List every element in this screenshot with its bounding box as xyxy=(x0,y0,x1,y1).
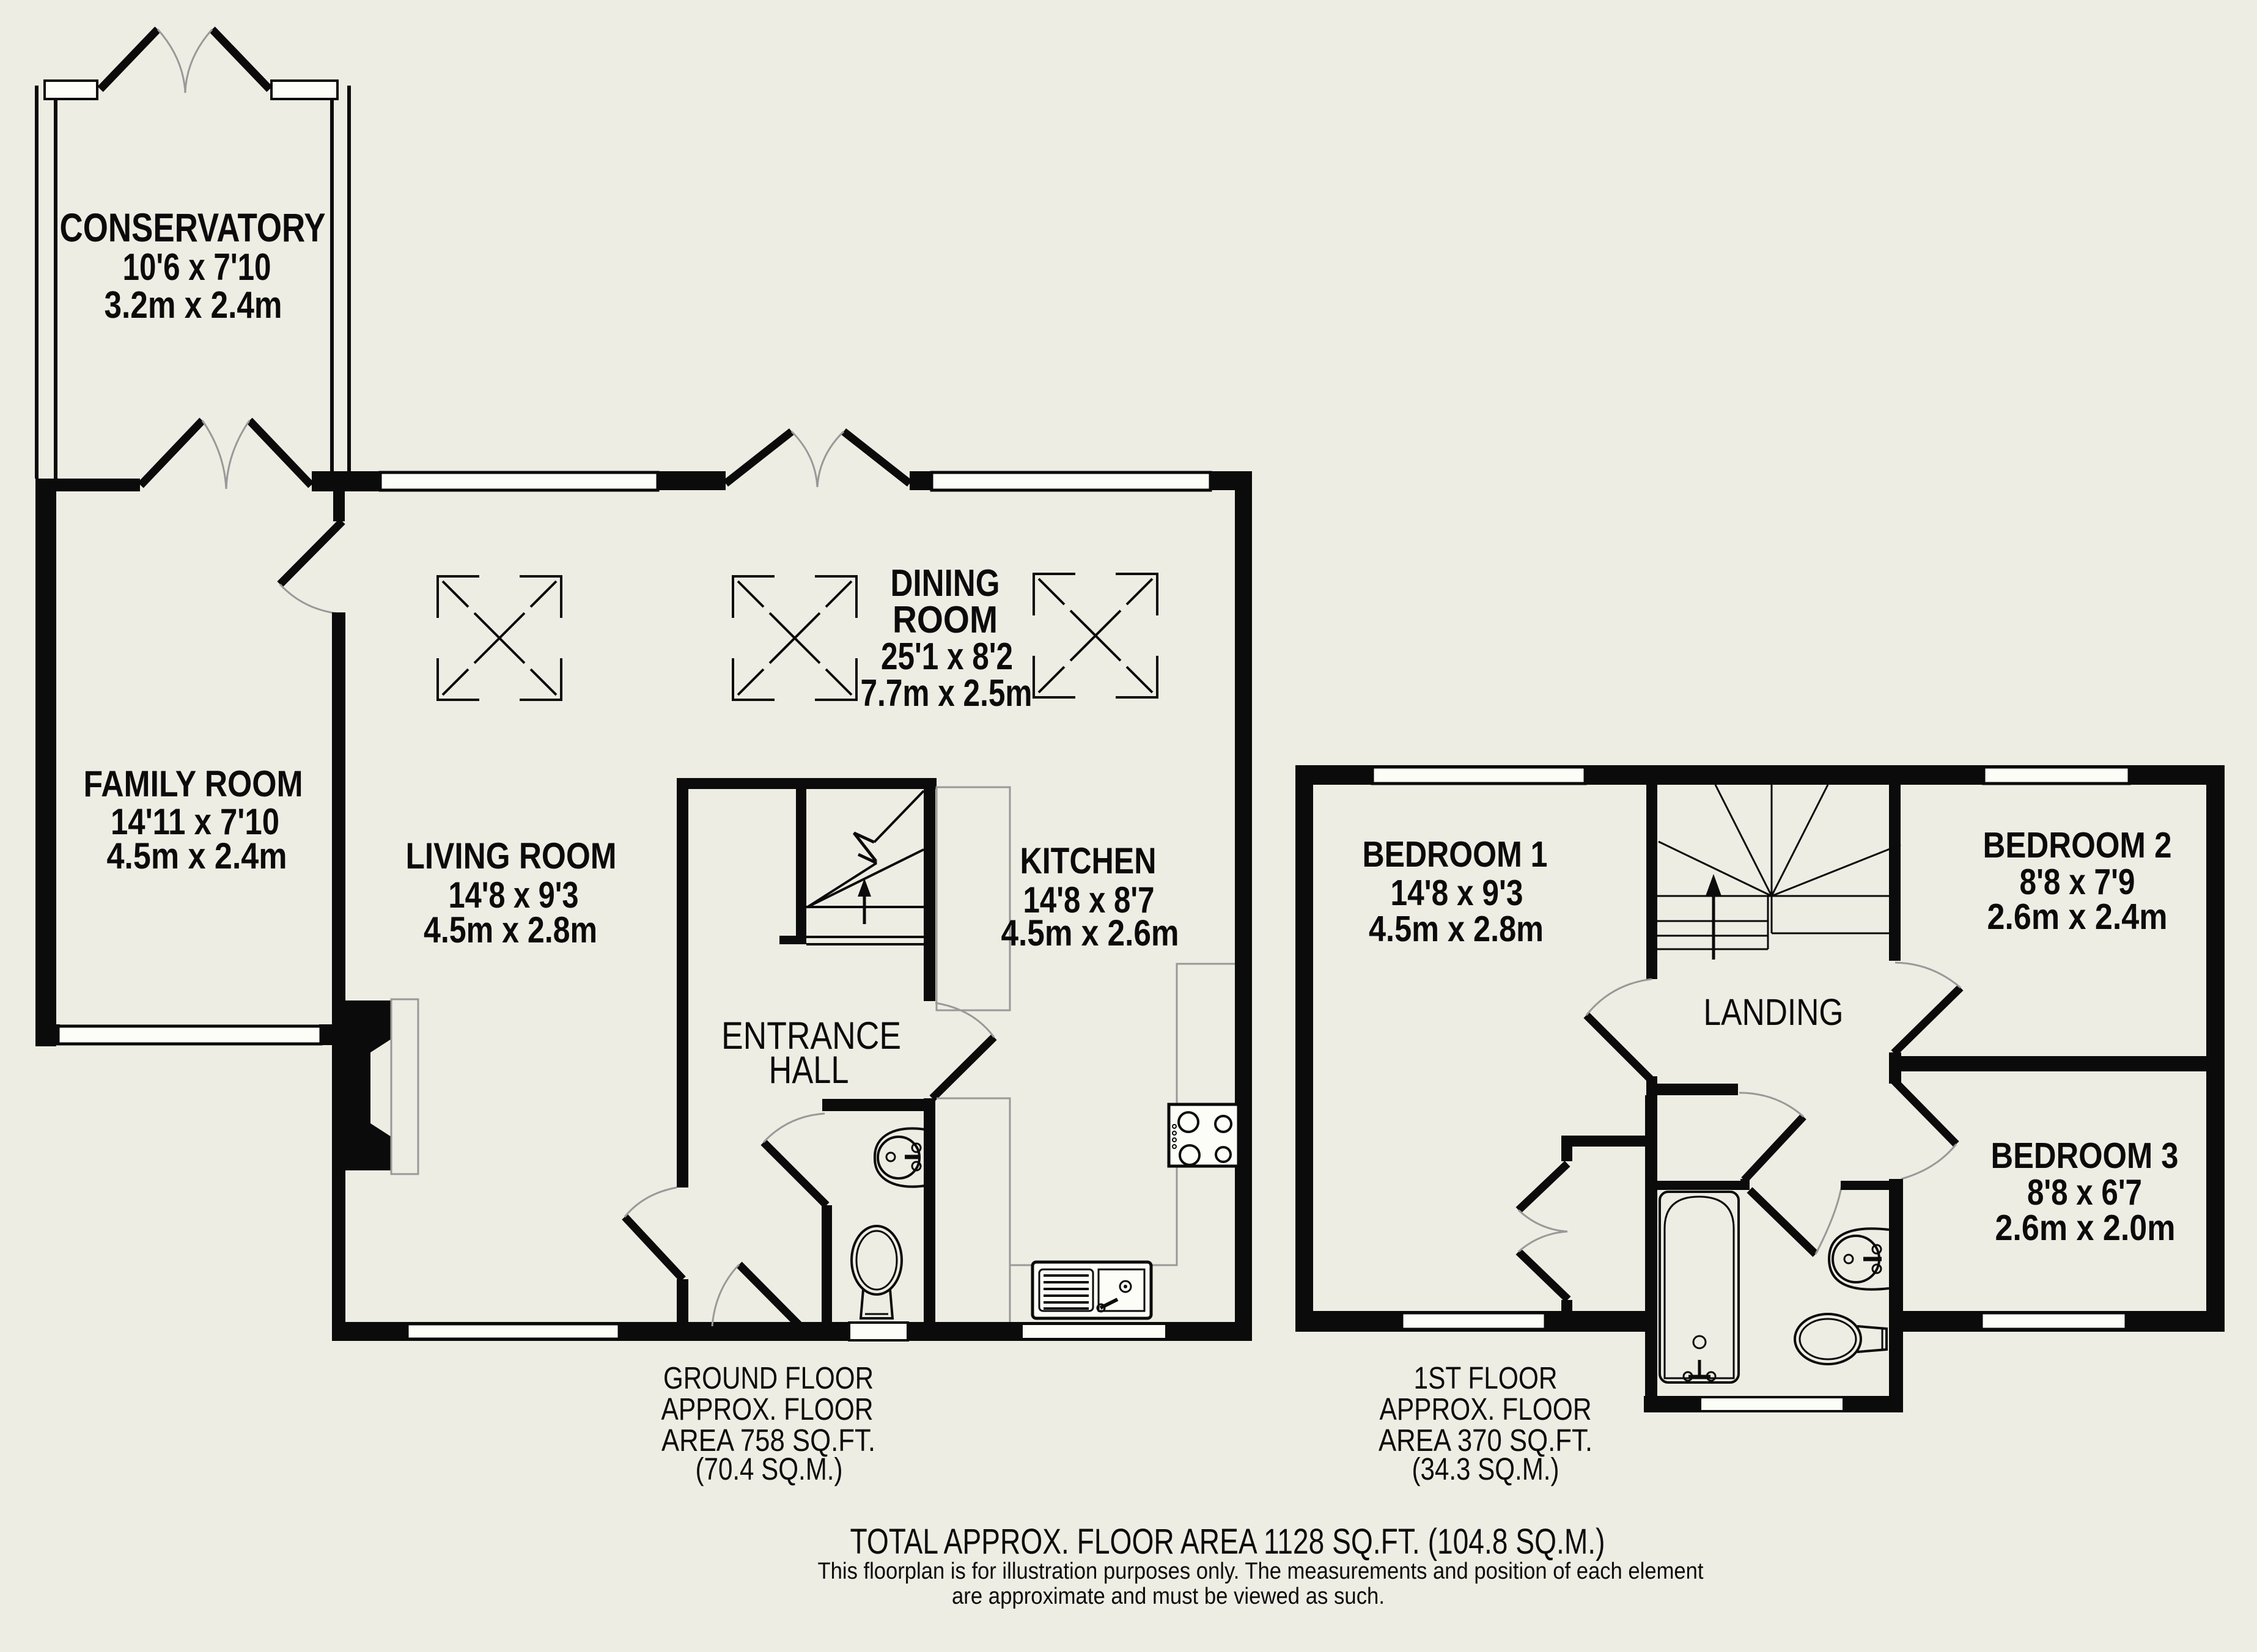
svg-text:HALL: HALL xyxy=(769,1049,849,1092)
svg-text:APPROX. FLOOR: APPROX. FLOOR xyxy=(661,1392,874,1426)
svg-text:FAMILY ROOM: FAMILY ROOM xyxy=(84,763,303,804)
svg-text:1ST FLOOR: 1ST FLOOR xyxy=(1414,1360,1558,1395)
svg-text:4.5m x 2.6m: 4.5m x 2.6m xyxy=(1001,912,1179,953)
svg-text:This floorplan is for illustra: This floorplan is for illustration purpo… xyxy=(818,1558,1704,1584)
svg-text:BEDROOM 2: BEDROOM 2 xyxy=(1983,825,2172,865)
svg-text:LANDING: LANDING xyxy=(1704,991,1844,1033)
svg-text:CONSERVATORY: CONSERVATORY xyxy=(60,205,326,250)
svg-text:4.5m x 2.8m: 4.5m x 2.8m xyxy=(1369,909,1544,949)
svg-text:(34.3 SQ.M.): (34.3 SQ.M.) xyxy=(1412,1452,1559,1486)
svg-text:GROUND FLOOR: GROUND FLOOR xyxy=(663,1360,874,1395)
svg-text:TOTAL APPROX. FLOOR AREA 1128: TOTAL APPROX. FLOOR AREA 1128 SQ.FT. (10… xyxy=(850,1522,1605,1562)
svg-text:LIVING ROOM: LIVING ROOM xyxy=(406,835,617,876)
svg-text:BEDROOM 3: BEDROOM 3 xyxy=(1991,1136,2179,1176)
svg-text:APPROX. FLOOR: APPROX. FLOOR xyxy=(1380,1392,1592,1426)
svg-text:7.7m x 2.5m: 7.7m x 2.5m xyxy=(861,672,1033,714)
svg-text:BEDROOM 1: BEDROOM 1 xyxy=(1363,834,1548,875)
svg-text:DINING: DINING xyxy=(891,562,1000,604)
svg-text:10'6 x 7'10: 10'6 x 7'10 xyxy=(123,246,271,288)
svg-text:ROOM: ROOM xyxy=(893,599,998,641)
svg-text:2.6m x 2.0m: 2.6m x 2.0m xyxy=(1995,1208,2176,1248)
svg-text:are approximate and must be vi: are approximate and must be viewed as su… xyxy=(952,1584,1385,1609)
svg-text:14'8 x 9'3: 14'8 x 9'3 xyxy=(1391,873,1523,913)
svg-text:3.2m x 2.4m: 3.2m x 2.4m xyxy=(105,284,282,326)
svg-text:(70.4 SQ.M.): (70.4 SQ.M.) xyxy=(696,1452,843,1486)
svg-text:8'8 x 6'7: 8'8 x 6'7 xyxy=(2027,1172,2142,1213)
svg-text:KITCHEN: KITCHEN xyxy=(1020,840,1157,881)
svg-text:4.5m x 2.4m: 4.5m x 2.4m xyxy=(107,835,287,876)
svg-text:25'1 x 8'2: 25'1 x 8'2 xyxy=(881,636,1013,678)
svg-text:2.6m x 2.4m: 2.6m x 2.4m xyxy=(1987,897,2168,937)
svg-text:4.5m x 2.8m: 4.5m x 2.8m xyxy=(424,909,597,950)
